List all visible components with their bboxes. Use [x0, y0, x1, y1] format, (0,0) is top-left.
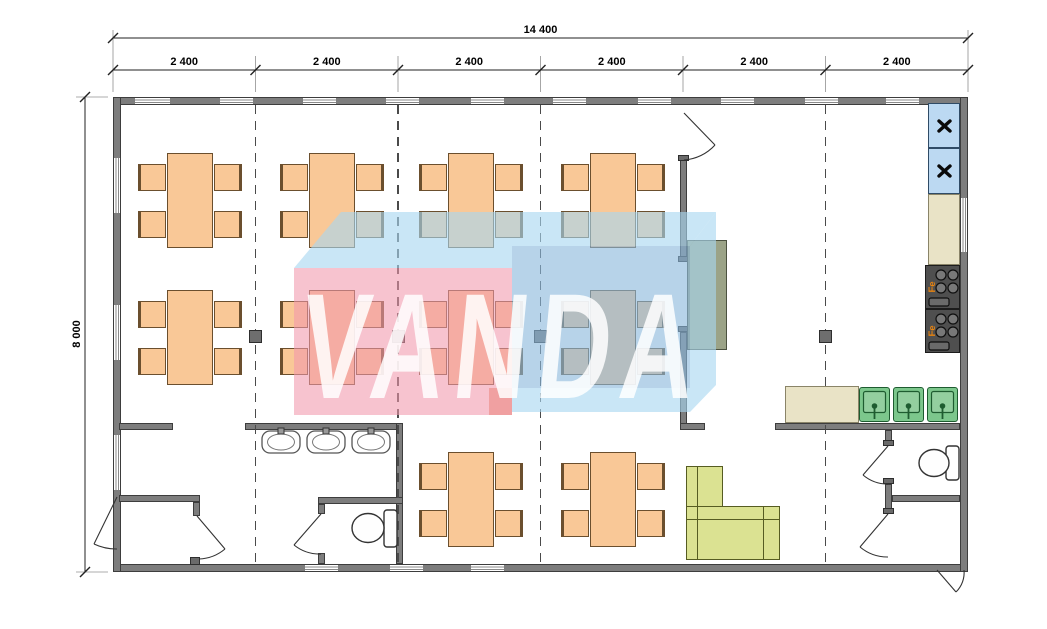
door-jamb	[883, 440, 894, 446]
wall-vestibule-inner	[119, 495, 200, 502]
chair	[280, 301, 308, 328]
wall-kitchen-partition-upper	[680, 160, 687, 262]
kitchen-sink	[859, 387, 890, 422]
sink-counter	[785, 386, 859, 423]
dining-table	[590, 452, 636, 547]
chair	[419, 301, 447, 328]
chair	[356, 164, 384, 191]
sofa-seam	[697, 467, 698, 559]
dining-table	[448, 452, 494, 547]
chair	[495, 348, 523, 375]
window	[960, 198, 968, 252]
chair	[419, 211, 447, 238]
watermark-bottom-bevel	[512, 388, 690, 412]
chair	[138, 301, 166, 328]
dimension-label-module: 2 400	[740, 56, 768, 68]
window	[113, 305, 121, 360]
kitchen-counter	[928, 194, 960, 265]
sofa-section-horizontal	[686, 506, 780, 560]
chair	[419, 164, 447, 191]
kitchen-sink	[927, 387, 958, 422]
chair	[495, 301, 523, 328]
washbasin	[262, 428, 390, 453]
chair	[561, 463, 589, 490]
wall-lounge-top-left	[680, 423, 705, 430]
wall-lounge-top-right	[775, 423, 960, 430]
dining-table	[590, 153, 636, 248]
dimension-label-module: 2 400	[598, 56, 626, 68]
watermark-pink-accent	[489, 388, 512, 415]
dimension-label-module: 2 400	[313, 56, 341, 68]
chair	[637, 164, 665, 191]
wall-wc1-top	[318, 497, 403, 504]
dining-table	[309, 290, 355, 385]
dimension-label-overall-width: 14 400	[524, 24, 558, 36]
window	[721, 97, 754, 105]
window	[303, 97, 336, 105]
column	[392, 330, 405, 343]
fridge	[928, 148, 960, 194]
window	[113, 158, 121, 213]
chair	[280, 164, 308, 191]
stove	[925, 265, 960, 309]
chair	[214, 164, 242, 191]
chair	[561, 510, 589, 537]
chair	[138, 211, 166, 238]
wall-vestibule-top	[119, 423, 173, 430]
window	[471, 564, 504, 572]
window	[886, 97, 919, 105]
chair	[138, 348, 166, 375]
dining-table	[590, 290, 636, 385]
chair	[637, 348, 665, 375]
fridge	[928, 103, 960, 148]
window	[471, 97, 504, 105]
chair	[419, 510, 447, 537]
dining-table	[448, 153, 494, 248]
dining-table	[448, 290, 494, 385]
door-jamb	[883, 508, 894, 514]
chair	[356, 301, 384, 328]
stove	[925, 309, 960, 353]
dimension-label-module: 2 400	[455, 56, 483, 68]
dining-table	[309, 153, 355, 248]
dimension-label-module: 2 400	[883, 56, 911, 68]
serving-counter	[687, 240, 727, 350]
door-jamb	[678, 155, 689, 161]
window	[638, 97, 671, 105]
wall-wc1-left-jamb-a	[318, 504, 325, 514]
chair	[637, 510, 665, 537]
chair	[495, 463, 523, 490]
dining-table	[167, 153, 213, 248]
chair	[419, 463, 447, 490]
dimension-label-overall-height: 8 000	[71, 320, 83, 348]
door-jamb	[883, 478, 894, 484]
wall-kitchen-partition-lower	[680, 332, 687, 430]
sofa-seam	[687, 519, 779, 520]
chair	[637, 463, 665, 490]
wall-exterior-bottom	[113, 564, 968, 572]
wall-washroom-top	[245, 423, 403, 430]
chair	[419, 348, 447, 375]
window	[220, 97, 253, 105]
chair	[561, 348, 589, 375]
window	[113, 435, 121, 490]
window	[305, 564, 338, 572]
door-jamb	[190, 557, 200, 565]
dining-table	[167, 290, 213, 385]
sofa-armrest	[763, 507, 764, 559]
chair	[495, 510, 523, 537]
chair	[356, 211, 384, 238]
chair	[214, 348, 242, 375]
chair	[561, 301, 589, 328]
dimension-label-module: 2 400	[170, 56, 198, 68]
floor-plan-canvas: 14 400 2 400 2 400 2 400 2 400 2 400 2 4…	[0, 0, 1047, 629]
window	[553, 97, 586, 105]
wall-wc1-left-jamb-b	[318, 553, 325, 564]
column	[819, 330, 832, 343]
chair	[561, 211, 589, 238]
chair	[138, 164, 166, 191]
window	[390, 564, 423, 572]
chair	[561, 164, 589, 191]
chair	[214, 301, 242, 328]
chair	[280, 211, 308, 238]
column	[534, 330, 547, 343]
wall-exterior-right	[960, 97, 968, 572]
chair	[495, 211, 523, 238]
chair	[356, 348, 384, 375]
wall-vestibule-return	[193, 502, 200, 516]
chair	[637, 301, 665, 328]
wall-wc2-divider	[892, 495, 960, 502]
column	[249, 330, 262, 343]
chair	[280, 348, 308, 375]
chair	[495, 164, 523, 191]
chair	[214, 211, 242, 238]
window	[386, 97, 419, 105]
window	[805, 97, 838, 105]
kitchen-sink	[893, 387, 924, 422]
chair	[637, 211, 665, 238]
window	[135, 97, 170, 105]
